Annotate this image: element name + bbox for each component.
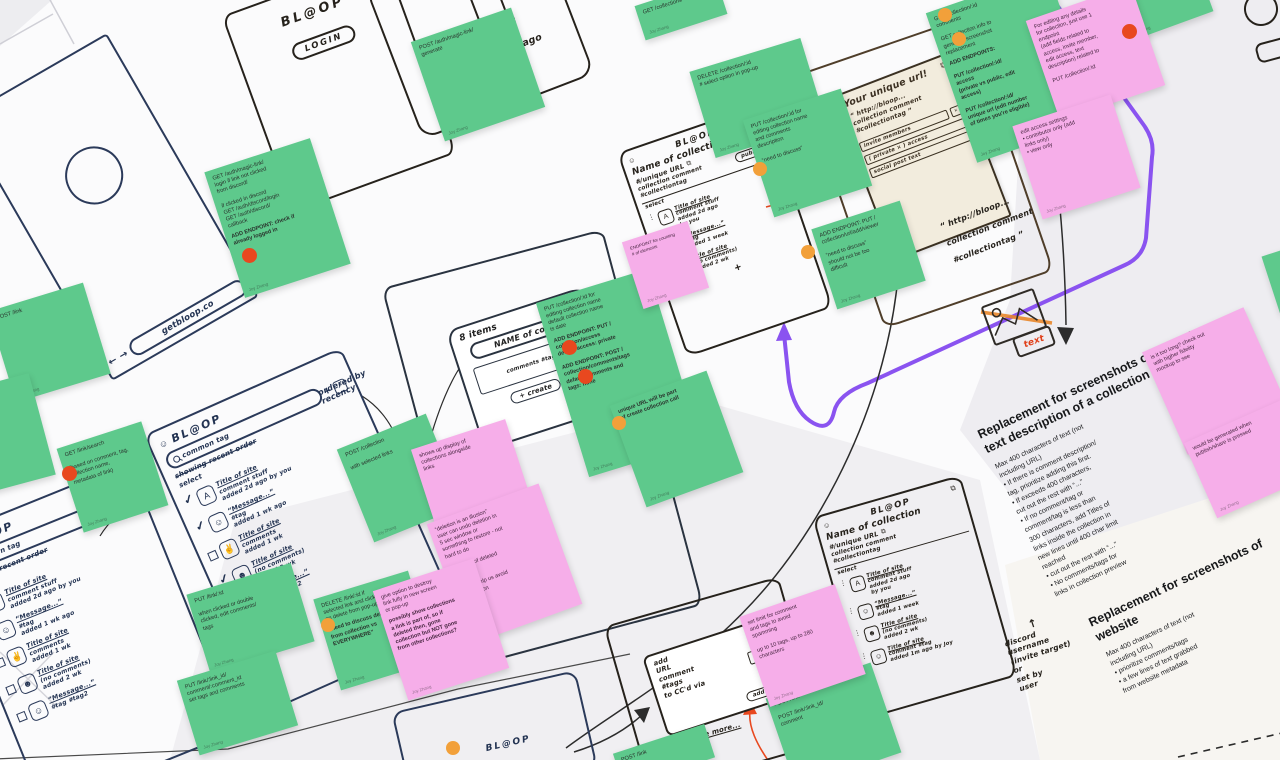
orange-vote-dot[interactable] — [952, 32, 966, 46]
site-icon: ☺ — [869, 647, 888, 666]
copy-icon[interactable]: ⧉ — [950, 485, 957, 494]
whiteboard-canvas[interactable]: ← → getbloop.co BL@OP LOGIN public links… — [0, 0, 1280, 760]
red-vote-dot[interactable] — [578, 369, 593, 384]
drag-handle-dots[interactable]: ⋮ — [847, 607, 856, 616]
search-icon — [172, 454, 181, 463]
checkbox[interactable] — [207, 550, 219, 562]
red-vote-dot[interactable] — [242, 248, 257, 263]
red-vote-dot[interactable] — [1122, 24, 1137, 39]
site-icon: ☺ — [0, 618, 18, 641]
site-icon: ☻ — [863, 625, 882, 644]
red-vote-dot[interactable] — [62, 466, 77, 481]
site-icon: ✌ — [5, 645, 28, 668]
site-icon: ☺ — [27, 699, 50, 722]
orange-vote-dot[interactable] — [612, 416, 626, 430]
drag-handle-dots[interactable]: ⋮ — [839, 579, 848, 588]
drag-handle-dots[interactable]: ⋮ — [853, 630, 862, 639]
sticky-author: Joy Zhang — [798, 743, 895, 760]
site-icon: ☺ — [857, 603, 876, 622]
orange-vote-dot[interactable] — [321, 618, 335, 632]
orange-vote-dot[interactable] — [801, 245, 815, 259]
checkbox[interactable] — [16, 711, 28, 723]
avatar-circle-sketch — [55, 136, 134, 215]
login-button[interactable]: LOGIN — [290, 23, 358, 62]
sticky-text: For editing any details for collection, … — [1033, 0, 1149, 86]
drag-handle-dots[interactable]: ⋮ — [647, 213, 656, 222]
site-icon: ✌ — [217, 537, 241, 561]
orange-vote-dot[interactable] — [938, 8, 952, 22]
orange-vote-dot[interactable] — [446, 741, 460, 755]
orange-vote-dot[interactable] — [753, 162, 767, 176]
site-icon: A — [848, 574, 867, 593]
forward-arrow-icon[interactable]: → — [117, 348, 130, 362]
site-icon: ☺ — [207, 510, 231, 534]
checkmark-icon[interactable]: ✓ — [182, 493, 196, 507]
copy-icon[interactable]: ⧉ — [880, 528, 887, 537]
checkmark-icon[interactable]: ✓ — [194, 519, 208, 533]
checkbox[interactable] — [5, 684, 17, 696]
sticky-text: should allow in Discord bot if comment/t… — [0, 380, 35, 439]
site-icon: A — [195, 484, 219, 508]
red-vote-dot[interactable] — [562, 340, 577, 355]
checkbox[interactable] — [0, 657, 6, 669]
bloop-logo: BL@OP — [485, 721, 588, 754]
site-icon: A — [656, 207, 675, 226]
site-icon: ☻ — [16, 672, 39, 695]
